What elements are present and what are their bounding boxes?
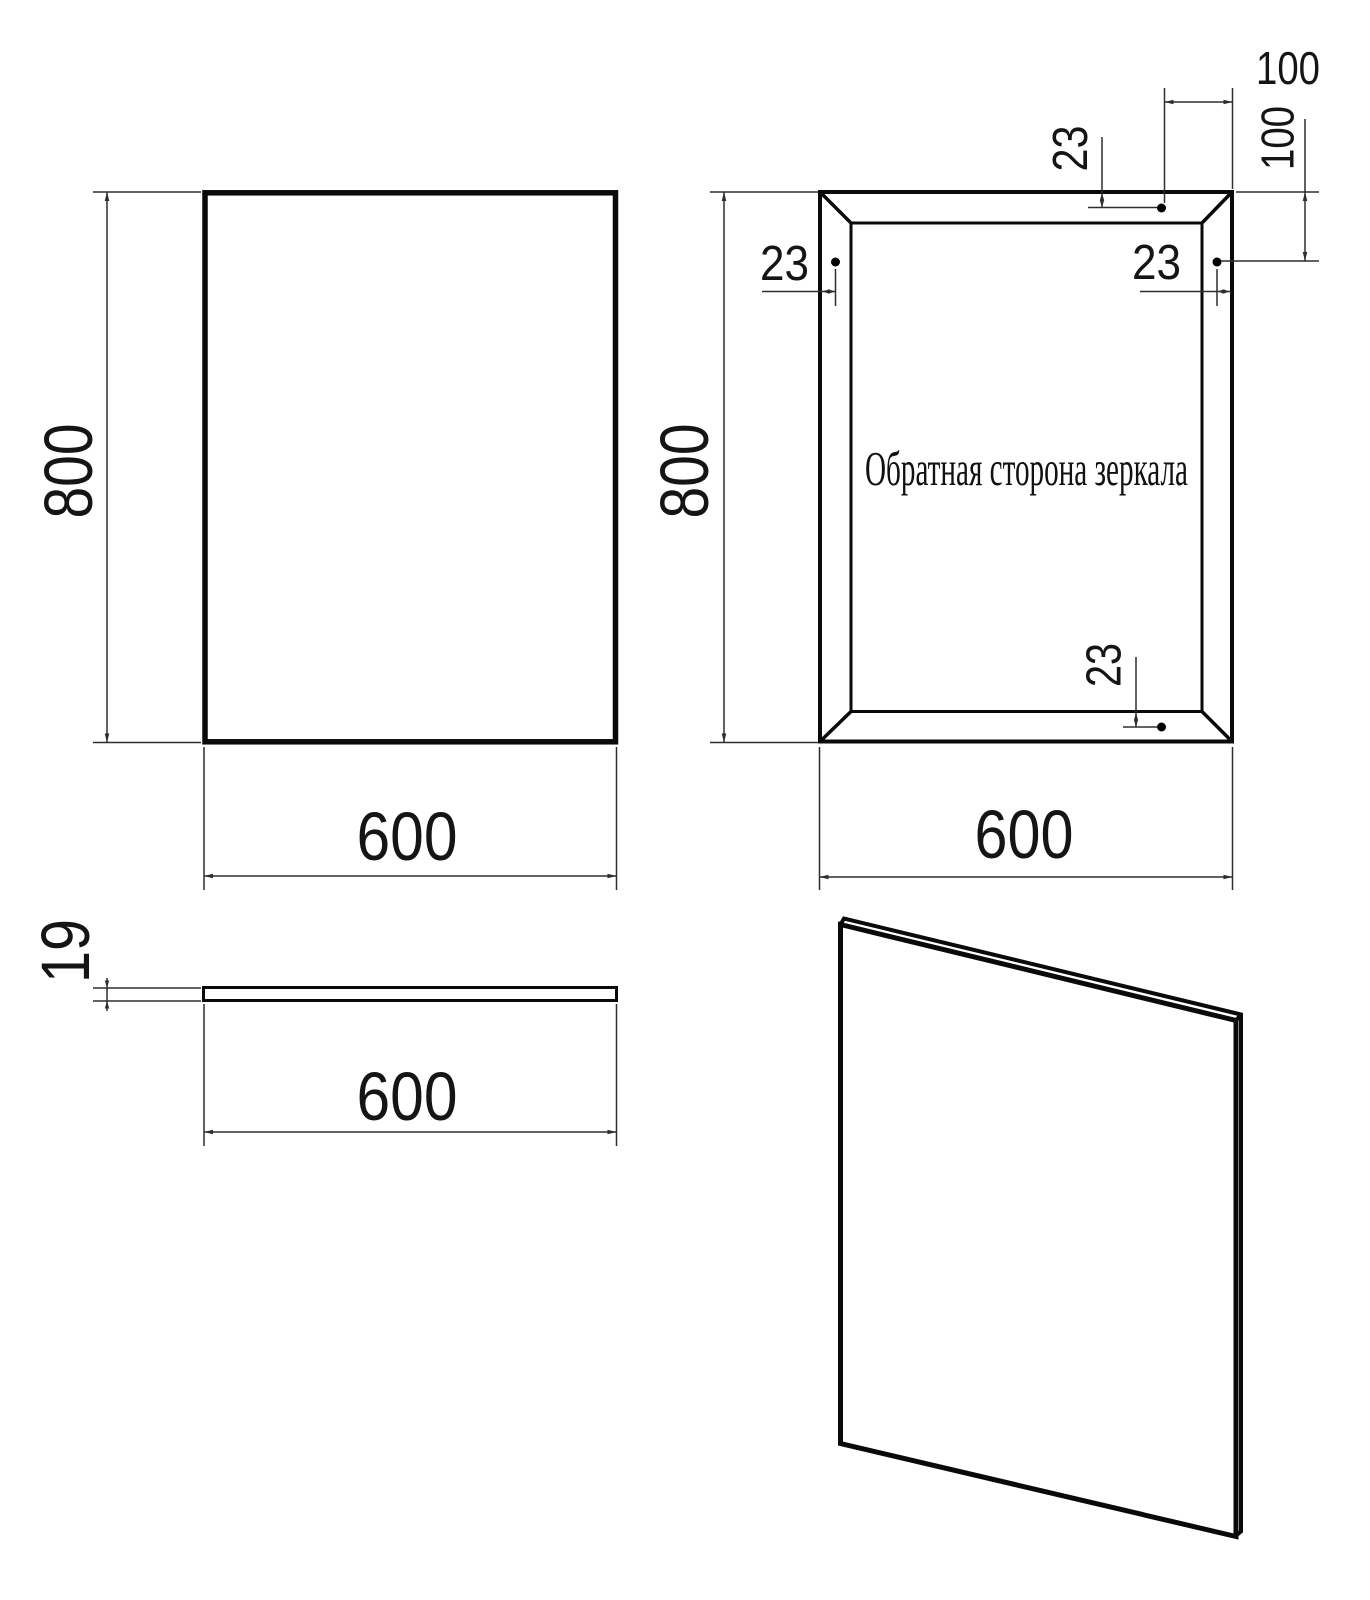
svg-text:23: 23 xyxy=(760,237,809,291)
svg-text:600: 600 xyxy=(975,796,1074,873)
svg-text:100: 100 xyxy=(1256,42,1320,94)
svg-text:800: 800 xyxy=(646,424,723,519)
svg-text:23: 23 xyxy=(1132,236,1181,290)
svg-text:100: 100 xyxy=(1252,106,1304,170)
svg-text:23: 23 xyxy=(1078,643,1132,687)
svg-text:600: 600 xyxy=(357,1058,458,1135)
svg-text:23: 23 xyxy=(1044,126,1098,172)
svg-text:Обратная сторона зеркала: Обратная сторона зеркала xyxy=(865,441,1188,496)
svg-text:600: 600 xyxy=(357,798,458,875)
svg-text:19: 19 xyxy=(27,919,104,983)
svg-text:800: 800 xyxy=(30,424,107,519)
